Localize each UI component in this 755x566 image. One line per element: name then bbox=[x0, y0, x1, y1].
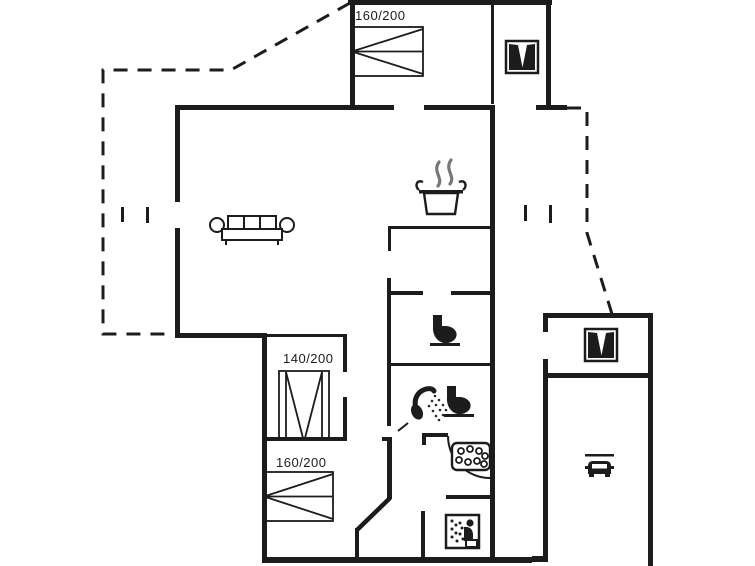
walls bbox=[175, 0, 653, 566]
bed-label-top: 160/200 bbox=[355, 8, 406, 23]
floorplan-canvas bbox=[0, 0, 755, 566]
sauna-icon bbox=[446, 515, 479, 548]
car-icon bbox=[585, 454, 614, 477]
cooking-pot-icon bbox=[416, 160, 465, 214]
bed-label-middle: 140/200 bbox=[283, 351, 334, 366]
door-tick-marks bbox=[121, 205, 552, 223]
shower-icon bbox=[409, 389, 448, 422]
whirlpool-icon bbox=[452, 443, 490, 470]
bed-symbol-top-160 bbox=[352, 27, 423, 76]
wardrobe-icon-hall bbox=[506, 41, 538, 73]
bed-symbol-bottom-160 bbox=[264, 472, 333, 521]
toilet-icon-bathroom bbox=[444, 386, 474, 417]
bed-label-bottom: 160/200 bbox=[276, 455, 327, 470]
floor-plan: 160/200 140/200 160/200 bbox=[0, 0, 755, 566]
angled-hall-wall bbox=[355, 498, 390, 560]
toilet-icon-wc bbox=[430, 315, 460, 346]
wardrobe-icon-annex bbox=[585, 329, 617, 361]
sofa-icon bbox=[210, 216, 294, 245]
bed-symbol-middle-140 bbox=[279, 371, 329, 440]
